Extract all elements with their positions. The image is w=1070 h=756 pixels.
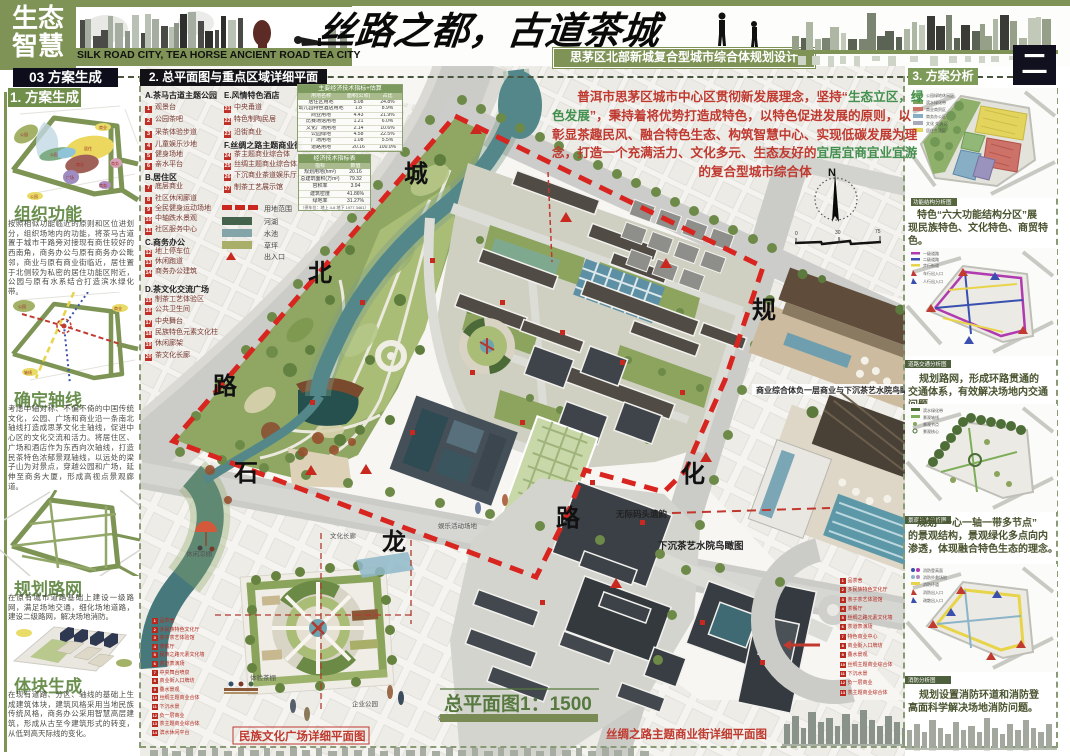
svg-text:河湖: 河湖 bbox=[264, 217, 278, 226]
svg-text:体验茶棚: 体验茶棚 bbox=[250, 673, 277, 682]
svg-text:公园: 公园 bbox=[18, 303, 26, 309]
svg-text:娱乐活动场地: 娱乐活动场地 bbox=[438, 521, 478, 530]
svg-text:消防出入口: 消防出入口 bbox=[923, 589, 943, 595]
svg-text:公园: 公园 bbox=[20, 131, 28, 137]
svg-text:企业公园: 企业公园 bbox=[352, 699, 378, 708]
svg-text:一级道路: 一级道路 bbox=[923, 250, 939, 256]
svg-text:消防登高面: 消防登高面 bbox=[923, 567, 943, 573]
svg-text:商业: 商业 bbox=[99, 124, 107, 130]
svg-text:规划“一心一轴一带多节点”的景观结构，景观绿化多点向内渗透，: 规划“一心一轴一带多节点”的景观结构，景观绿化多点向内渗透，体现融合特色生态的理… bbox=[908, 516, 1057, 555]
svg-text:石: 石 bbox=[233, 460, 258, 487]
svg-text:消防分析图: 消防分析图 bbox=[908, 676, 936, 684]
svg-text:龙: 龙 bbox=[382, 529, 406, 556]
svg-text:公园: 公园 bbox=[50, 151, 58, 157]
svg-text:休闲凉棚: 休闲凉棚 bbox=[186, 549, 213, 558]
svg-text:下沉茶艺水院鸟瞰图: 下沉茶艺水院鸟瞰图 bbox=[658, 540, 744, 552]
svg-text:公园: 公园 bbox=[30, 193, 38, 199]
svg-text:景观节点: 景观节点 bbox=[923, 421, 939, 427]
svg-text:出入口: 出入口 bbox=[264, 252, 285, 261]
svg-text:景观轴线: 景观轴线 bbox=[923, 414, 939, 420]
svg-text:用地范围: 用地范围 bbox=[264, 204, 292, 213]
svg-text:75: 75 bbox=[875, 229, 881, 235]
svg-text:商业: 商业 bbox=[114, 305, 122, 311]
svg-text:30: 30 bbox=[835, 230, 841, 236]
svg-text:二级道路: 二级道路 bbox=[923, 256, 939, 262]
svg-text:城: 城 bbox=[404, 160, 428, 188]
svg-text:车行出入口: 车行出入口 bbox=[923, 270, 943, 276]
svg-text:轴线: 轴线 bbox=[24, 369, 32, 375]
svg-text:景观核心: 景观核心 bbox=[923, 428, 939, 434]
svg-text:商务: 商务 bbox=[111, 160, 119, 166]
svg-text:人行出入口: 人行出入口 bbox=[923, 278, 943, 284]
svg-text:商业: 商业 bbox=[76, 161, 84, 167]
svg-text:居住: 居住 bbox=[84, 145, 92, 151]
svg-text:丝绸之路主题商业街详细平面图: 丝绸之路主题商业街详细平面图 bbox=[606, 727, 767, 741]
svg-text:道路交通分析图: 道路交通分析图 bbox=[908, 360, 947, 368]
svg-text:北: 北 bbox=[308, 260, 332, 287]
svg-text:特色“六大功能结构分区”展现民族特色、文化特色、商贸特色。: 特色“六大功能结构分区”展现民族特色、文化特色、商贸特色。 bbox=[908, 208, 1048, 247]
svg-text:商业综合体负一层商业与下沉茶艺水院鸟瞰: 商业综合体负一层商业与下沉茶艺水院鸟瞰 bbox=[756, 385, 905, 395]
svg-text:消防环道: 消防环道 bbox=[923, 581, 939, 587]
svg-text:路: 路 bbox=[556, 504, 581, 532]
svg-text:商务: 商务 bbox=[99, 182, 107, 188]
svg-text:草坪: 草坪 bbox=[264, 241, 278, 250]
svg-text:化: 化 bbox=[681, 460, 705, 488]
svg-text:总平面图1：1500: 总平面图1：1500 bbox=[444, 692, 592, 715]
svg-text:无际码头遗韵: 无际码头遗韵 bbox=[615, 509, 668, 519]
svg-text:民族文化广场详细平面图: 民族文化广场详细平面图 bbox=[239, 729, 366, 743]
svg-text:消防扑救场地: 消防扑救场地 bbox=[923, 574, 947, 580]
svg-text:疏散出入口: 疏散出入口 bbox=[923, 597, 943, 603]
svg-text:文化长廊: 文化长廊 bbox=[330, 531, 357, 540]
svg-text:0: 0 bbox=[795, 231, 798, 237]
svg-text:规划设置消防环道和消防登高面科学解决场地消防问题。: 规划设置消防环道和消防登高面科学解决场地消防问题。 bbox=[908, 688, 1040, 714]
svg-text:路: 路 bbox=[213, 372, 238, 400]
svg-text:步行街道: 步行街道 bbox=[923, 262, 939, 268]
svg-text:水池: 水池 bbox=[264, 229, 278, 238]
svg-text:广场: 广场 bbox=[66, 174, 74, 180]
svg-text:功能结构分析图: 功能结构分析图 bbox=[913, 198, 952, 206]
svg-text:规: 规 bbox=[752, 297, 776, 324]
svg-text:滨水绿化带: 滨水绿化带 bbox=[923, 407, 943, 413]
